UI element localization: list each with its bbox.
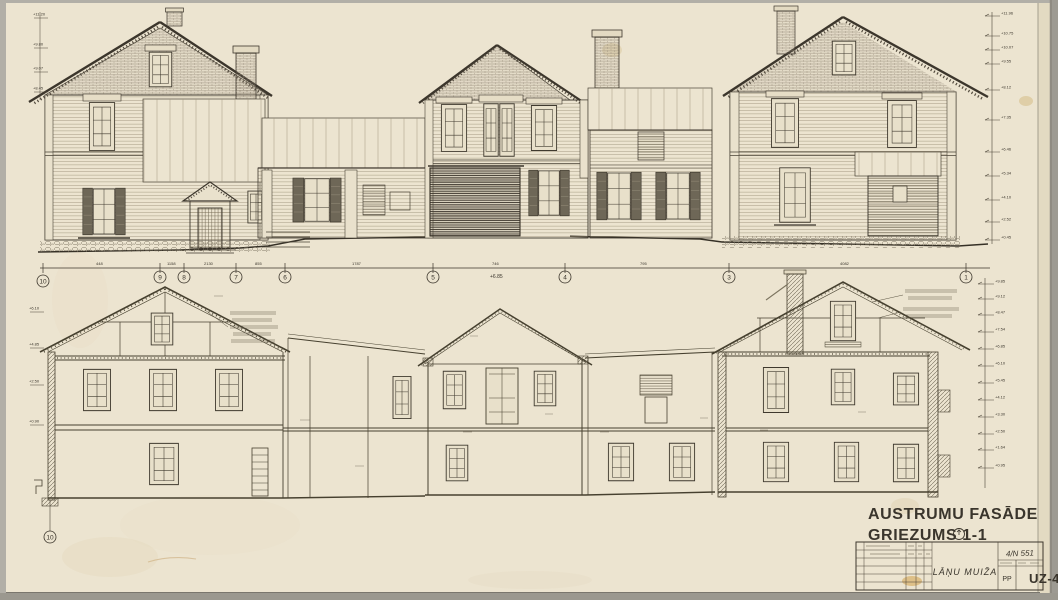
archive-reference: 4/N 551: [1006, 549, 1034, 559]
title-line-1: AUSTRUMU FASĀDE: [868, 504, 1038, 523]
window: [443, 371, 466, 409]
shuttered-window: [597, 172, 641, 220]
window: [893, 186, 907, 202]
svg-text:+0.90: +0.90: [29, 419, 40, 424]
shuttered-window: [83, 188, 125, 235]
svg-text:+11.96: +11.96: [1001, 11, 1014, 16]
svg-text:+6.10: +6.10: [29, 306, 40, 311]
svg-text:+4.12: +4.12: [995, 395, 1006, 400]
window: [534, 371, 556, 406]
scanned-drawing-sheet: 448 1158 2130 855 1787 746 795 4082 +6.8…: [0, 0, 1058, 600]
svg-text:+9.07: +9.07: [33, 66, 44, 71]
svg-text:6: 6: [283, 274, 287, 281]
svg-text:+6.46: +6.46: [1001, 147, 1012, 152]
window: [484, 104, 498, 157]
window: [150, 443, 179, 484]
window: [216, 369, 243, 410]
svg-text:+2.50: +2.50: [995, 429, 1006, 434]
cut-wall: [48, 352, 55, 500]
svg-text:10: 10: [39, 278, 47, 285]
svg-text:5: 5: [431, 274, 435, 281]
svg-text:+5.45: +5.45: [995, 378, 1006, 383]
window: [893, 444, 918, 482]
double-door: [486, 368, 518, 424]
svg-text:1: 1: [964, 274, 968, 281]
window: [893, 373, 918, 405]
svg-text:+8.45: +8.45: [33, 86, 44, 91]
svg-text:+4.10: +4.10: [1001, 195, 1012, 200]
attic-window: [151, 313, 173, 345]
title-line-2: GRIEZUMS 1-1: [868, 527, 987, 544]
window: [888, 101, 917, 148]
window: [763, 368, 788, 413]
svg-text:8: 8: [182, 274, 186, 281]
svg-text:746: 746: [492, 261, 499, 266]
svg-text:+0.45: +0.45: [1001, 235, 1012, 240]
svg-text:10: 10: [46, 534, 54, 541]
svg-text:+4.85: +4.85: [29, 342, 40, 347]
svg-text:448: 448: [96, 261, 103, 266]
chimney: [166, 8, 184, 26]
window: [500, 104, 514, 157]
sheet-number: UZ-4: [1029, 571, 1058, 586]
attic-window: [830, 301, 855, 340]
door: [393, 376, 411, 418]
barn-door-opening: [868, 176, 938, 236]
svg-text:+5.34: +5.34: [1001, 171, 1012, 176]
window: [149, 52, 172, 87]
shuttered-window: [529, 170, 569, 216]
shuttered-window: [293, 178, 341, 222]
svg-text:+1.64: +1.64: [995, 445, 1006, 450]
chimney-section: [784, 270, 806, 354]
level-note: +6.85: [490, 274, 503, 280]
svg-text:+6.85: +6.85: [995, 344, 1006, 349]
svg-text:+9.55: +9.55: [1001, 59, 1012, 64]
window: [669, 443, 694, 481]
svg-text:+8.47: +8.47: [995, 310, 1006, 315]
svg-text:9: 9: [158, 274, 162, 281]
svg-text:3: 3: [727, 274, 731, 281]
window: [441, 105, 466, 152]
svg-text:1787: 1787: [352, 261, 362, 266]
svg-text:+7.35: +7.35: [1001, 115, 1012, 120]
louver-vent: [640, 375, 672, 395]
louver-vent: [638, 132, 664, 160]
window: [84, 369, 111, 410]
svg-text:+7.54: +7.54: [995, 327, 1006, 332]
svg-text:+10.75: +10.75: [1001, 31, 1014, 36]
svg-text:+9.80: +9.80: [33, 42, 44, 47]
window: [832, 41, 855, 75]
foundation: [40, 240, 270, 252]
svg-text:+8.12: +8.12: [1001, 85, 1012, 90]
svg-text:2130: 2130: [204, 261, 214, 266]
svg-text:+0.95: +0.95: [995, 463, 1006, 468]
svg-text:1158: 1158: [167, 261, 176, 266]
window: [608, 443, 633, 481]
chimney: [774, 6, 798, 54]
window: [150, 369, 177, 410]
window: [446, 445, 468, 481]
stage-code: PP: [1002, 576, 1012, 583]
window: [831, 369, 854, 405]
window: [780, 168, 811, 222]
svg-text:795: 795: [640, 261, 647, 266]
cut-wall: [928, 352, 938, 497]
svg-text:+11.20: +11.20: [33, 12, 46, 17]
svg-text:+2.52: +2.52: [1001, 217, 1012, 222]
project-name: LĀŅU MUIŽA: [933, 567, 998, 577]
foundation: [722, 236, 960, 248]
window: [89, 103, 114, 151]
svg-text:+9.12: +9.12: [995, 294, 1006, 299]
garage-opening: [430, 168, 520, 236]
svg-text:4082: 4082: [840, 261, 850, 266]
facade-wing-left: [258, 118, 428, 247]
window: [834, 442, 858, 481]
svg-text:+9.85: +9.85: [995, 279, 1006, 284]
svg-text:+6.10: +6.10: [995, 361, 1006, 366]
window: [772, 99, 799, 148]
window: [763, 442, 788, 481]
svg-text:855: 855: [255, 261, 262, 266]
niche: [363, 185, 385, 215]
svg-text:+3.30: +3.30: [995, 412, 1006, 417]
svg-text:+2.50: +2.50: [29, 379, 40, 384]
svg-text:+10.07: +10.07: [1001, 45, 1014, 50]
shuttered-window: [656, 172, 700, 220]
window: [531, 106, 556, 151]
chimney: [592, 30, 622, 90]
svg-text:7: 7: [234, 274, 238, 281]
cut-wall: [718, 352, 726, 497]
svg-text:4: 4: [563, 274, 567, 281]
facade-wing-right: [588, 88, 712, 238]
